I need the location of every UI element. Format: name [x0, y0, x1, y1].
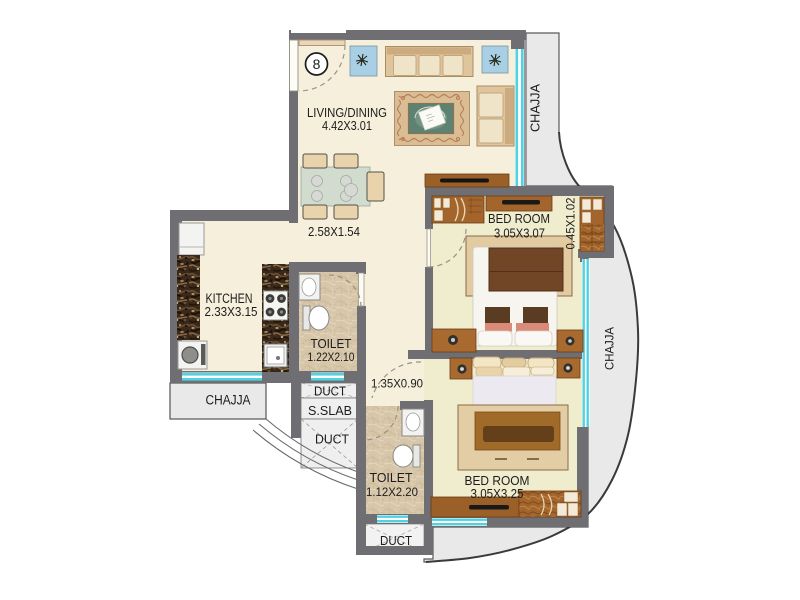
- svg-text:3.05X3.07: 3.05X3.07: [494, 227, 545, 241]
- svg-text:CHAJJA: CHAJJA: [605, 327, 617, 370]
- svg-text:1.12X2.20: 1.12X2.20: [366, 485, 418, 499]
- svg-text:DUCT: DUCT: [315, 433, 349, 447]
- svg-text:2.33X3.15: 2.33X3.15: [205, 304, 258, 319]
- svg-text:TOILET: TOILET: [370, 471, 413, 485]
- svg-text:8: 8: [313, 56, 321, 72]
- svg-text:4.42X3.01: 4.42X3.01: [322, 119, 372, 133]
- svg-text:3.05X3.25: 3.05X3.25: [471, 487, 524, 501]
- svg-text:0.45X1.02: 0.45X1.02: [566, 198, 578, 250]
- svg-text:1.22X2.10: 1.22X2.10: [308, 350, 355, 364]
- svg-text:TOILET: TOILET: [311, 337, 352, 351]
- svg-text:BED ROOM: BED ROOM: [465, 474, 530, 488]
- svg-text:CHAJJA: CHAJJA: [206, 393, 251, 408]
- svg-text:2.58X1.54: 2.58X1.54: [308, 225, 360, 239]
- svg-text:DUCT: DUCT: [380, 534, 412, 548]
- svg-text:CHAJJA: CHAJJA: [529, 83, 543, 132]
- svg-text:DUCT: DUCT: [314, 385, 346, 399]
- svg-text:LIVING/DINING: LIVING/DINING: [307, 105, 387, 120]
- svg-text:1.35X0.90: 1.35X0.90: [371, 379, 423, 391]
- svg-text:S.SLAB: S.SLAB: [308, 404, 352, 418]
- svg-text:BED ROOM: BED ROOM: [488, 212, 550, 226]
